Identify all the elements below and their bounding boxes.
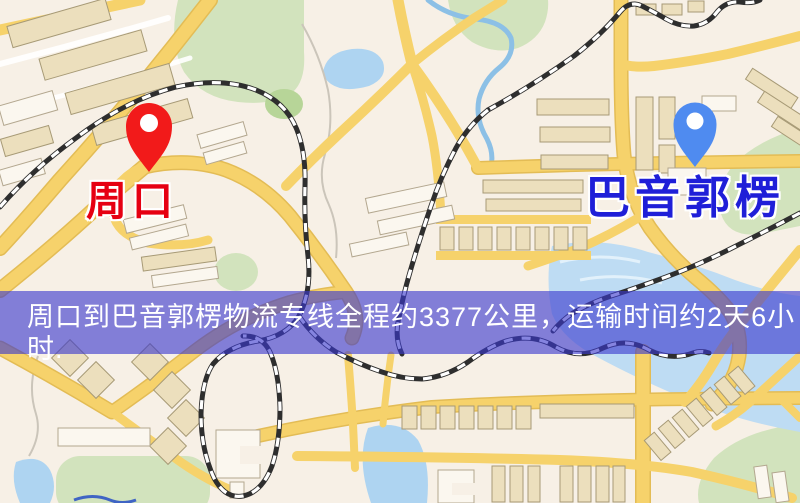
destination-label: 巴音郭楞 — [585, 175, 785, 220]
map-background — [0, 0, 800, 503]
route-info-banner: 周口到巴音郭楞物流专线全程约3377公里，运输时间约2天6小时. — [0, 291, 800, 354]
map-screenshot: 周口 巴音郭楞 周口到巴音郭楞物流专线全程约3377公里，运输时间约2天6小时. — [0, 0, 800, 503]
origin-label: 周口 — [86, 181, 178, 222]
